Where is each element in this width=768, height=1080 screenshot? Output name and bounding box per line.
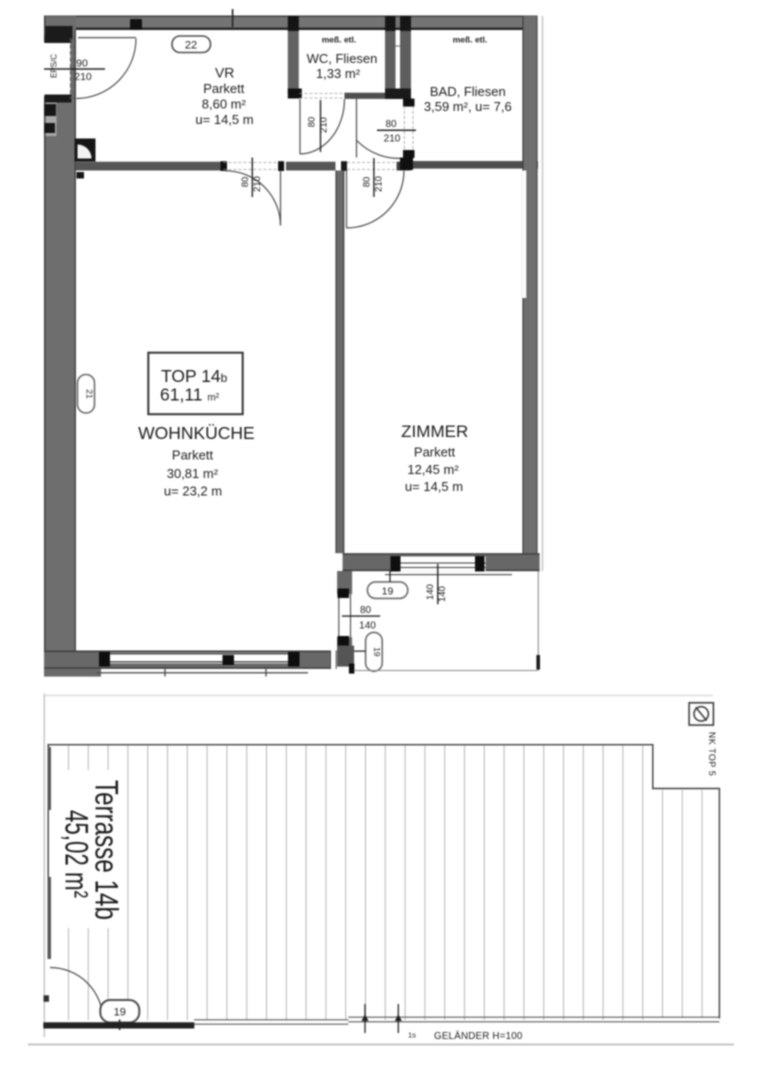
svg-text:TOP 14b: TOP 14b (161, 366, 228, 386)
svg-text:1,33 m²: 1,33 m² (316, 66, 361, 81)
svg-text:80: 80 (385, 119, 397, 130)
svg-text:30,81 m²: 30,81 m² (167, 466, 219, 481)
svg-text:19: 19 (382, 585, 394, 597)
svg-text:Parkett: Parkett (172, 448, 214, 463)
svg-text:u= 14,5 m: u= 14,5 m (405, 479, 463, 494)
svg-text:90: 90 (76, 58, 88, 70)
svg-text:140: 140 (425, 584, 436, 600)
svg-text:19: 19 (372, 647, 382, 657)
svg-text:meß. e‌tl.: meß. e‌tl. (453, 35, 487, 45)
svg-text:WC, Fliesen: WC, Fliesen (307, 51, 378, 66)
svg-text:BAD, Fliesen: BAD, Fliesen (430, 84, 506, 99)
svg-text:8,60 m²: 8,60 m² (202, 97, 247, 112)
svg-text:80: 80 (360, 605, 372, 616)
svg-text:u= 14,5 m: u= 14,5 m (195, 112, 253, 127)
svg-text:1s: 1s (408, 1031, 416, 1040)
svg-text:meß. e‌tl.: meß. e‌tl. (322, 35, 356, 45)
svg-text:21: 21 (85, 389, 95, 399)
svg-text:ZIMMER: ZIMMER (401, 422, 468, 441)
svg-text:WOHNKÜCHE: WOHNKÜCHE (138, 423, 255, 443)
svg-text:19: 19 (114, 1007, 126, 1019)
svg-text:210: 210 (374, 176, 385, 192)
svg-text:80: 80 (307, 117, 318, 128)
svg-text:80: 80 (240, 177, 251, 188)
svg-text:VR: VR (215, 65, 234, 81)
svg-text:140: 140 (359, 621, 376, 632)
svg-text:Parkett: Parkett (203, 81, 245, 96)
svg-text:210: 210 (74, 71, 92, 83)
svg-text:140: 140 (437, 586, 448, 602)
svg-text:22: 22 (185, 40, 197, 52)
svg-text:210: 210 (384, 134, 401, 145)
svg-text:210: 210 (319, 117, 330, 133)
svg-text:210: 210 (252, 176, 263, 192)
svg-text:45,02 m²: 45,02 m² (59, 810, 95, 898)
svg-text:u= 23,2 m: u= 23,2 m (164, 484, 222, 499)
svg-text:GELÄNDER H=100: GELÄNDER H=100 (434, 1031, 523, 1042)
svg-text:80: 80 (362, 177, 373, 188)
svg-text:12,45 m²: 12,45 m² (407, 462, 459, 477)
svg-text:NK TOP 5: NK TOP 5 (707, 732, 717, 777)
svg-text:Parkett: Parkett (414, 445, 456, 460)
svg-text:3,59 m², u= 7,6: 3,59 m², u= 7,6 (424, 99, 512, 114)
svg-text:EPS/C: EPS/C (50, 54, 59, 78)
